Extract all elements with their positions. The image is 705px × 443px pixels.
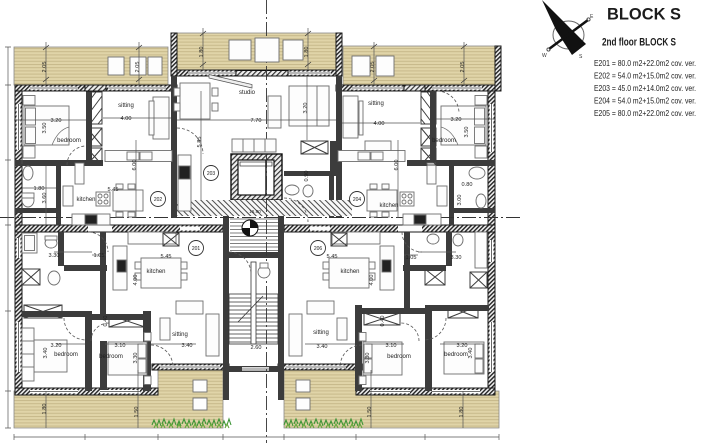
svg-text:sitting: sitting <box>172 332 188 338</box>
svg-text:4.00: 4.00 <box>121 116 132 122</box>
svg-text:1.05: 1.05 <box>94 253 105 259</box>
svg-text:3.40: 3.40 <box>182 343 193 349</box>
svg-text:2.05: 2.05 <box>135 62 141 73</box>
svg-text:5.45: 5.45 <box>327 254 338 260</box>
svg-text:3.30: 3.30 <box>133 353 139 364</box>
svg-text:bedroom: bedroom <box>54 352 78 358</box>
svg-text:3.40: 3.40 <box>317 344 328 350</box>
svg-text:4.00: 4.00 <box>133 275 139 286</box>
svg-text:202: 202 <box>154 197 163 203</box>
svg-text:3.30: 3.30 <box>365 353 371 364</box>
svg-text:E203 = 45.0 m2+14.0m2 cov. ver: E203 = 45.0 m2+14.0m2 cov. ver. <box>594 83 696 93</box>
svg-text:E201 = 80.0 m2+22.0m2 cov. ver: E201 = 80.0 m2+22.0m2 cov. ver. <box>594 58 696 68</box>
svg-text:3.40: 3.40 <box>43 348 49 359</box>
svg-text:3.30: 3.30 <box>49 253 60 259</box>
svg-text:2.05: 2.05 <box>460 62 466 73</box>
svg-text:3.20: 3.20 <box>451 117 462 123</box>
svg-text:3.20: 3.20 <box>457 343 468 349</box>
svg-text:sitting: sitting <box>313 330 329 336</box>
svg-text:1.80: 1.80 <box>34 186 45 192</box>
svg-text:1.80: 1.80 <box>304 47 310 58</box>
svg-text:0.40: 0.40 <box>380 316 386 327</box>
svg-text:3.40: 3.40 <box>468 348 474 359</box>
svg-text:3.50: 3.50 <box>464 127 470 138</box>
svg-text:4.00: 4.00 <box>374 121 385 127</box>
svg-text:W: W <box>542 53 547 59</box>
svg-text:2.05: 2.05 <box>370 62 376 73</box>
svg-text:201: 201 <box>192 246 201 252</box>
svg-text:bedroom: bedroom <box>387 354 411 360</box>
svg-text:2.05: 2.05 <box>42 62 48 73</box>
svg-text:1.05: 1.05 <box>406 255 417 261</box>
svg-text:0.40: 0.40 <box>103 316 109 327</box>
svg-text:2.60: 2.60 <box>251 345 262 351</box>
svg-text:2nd floor BLOCK S: 2nd floor BLOCK S <box>602 37 676 49</box>
svg-text:bedroom: bedroom <box>57 138 81 144</box>
svg-text:7.70: 7.70 <box>251 118 262 124</box>
svg-text:kitchen: kitchen <box>340 269 359 275</box>
svg-text:3.20: 3.20 <box>303 103 309 114</box>
svg-text:studio: studio <box>239 90 256 96</box>
svg-text:4.00: 4.00 <box>369 275 375 286</box>
svg-text:0.80: 0.80 <box>462 182 473 188</box>
svg-text:kitchen: kitchen <box>379 203 398 209</box>
svg-text:sitting: sitting <box>118 103 134 109</box>
svg-text:5.85: 5.85 <box>197 137 203 148</box>
svg-text:bedroom: bedroom <box>99 354 123 360</box>
svg-text:3.30: 3.30 <box>451 255 462 261</box>
svg-text:203: 203 <box>207 171 216 177</box>
svg-text:5.45: 5.45 <box>161 254 172 260</box>
svg-text:3.00: 3.00 <box>457 195 463 206</box>
svg-text:204: 204 <box>353 197 362 203</box>
svg-text:1.80: 1.80 <box>459 407 465 418</box>
svg-text:1.80: 1.80 <box>199 47 205 58</box>
svg-text:bedroom: bedroom <box>432 138 456 144</box>
svg-text:16.80: 16.80 <box>249 209 261 214</box>
svg-text:3.60: 3.60 <box>42 193 48 204</box>
svg-text:6.00: 6.00 <box>132 160 138 171</box>
svg-text:1.80: 1.80 <box>42 404 48 415</box>
svg-text:3.20: 3.20 <box>51 118 62 124</box>
svg-text:kitchen: kitchen <box>76 197 95 203</box>
svg-text:E205 = 80.0 m2+22.0m2 cov. ver: E205 = 80.0 m2+22.0m2 cov. ver. <box>594 108 696 118</box>
svg-text:3.50: 3.50 <box>42 123 48 134</box>
svg-text:BLOCK S: BLOCK S <box>607 5 681 24</box>
svg-text:6.00: 6.00 <box>394 160 400 171</box>
svg-text:3.10: 3.10 <box>115 343 126 349</box>
svg-text:1.50: 1.50 <box>367 407 373 418</box>
svg-text:206: 206 <box>314 246 323 252</box>
svg-text:E202 = 54.0 m2+15.0m2 cov. ver: E202 = 54.0 m2+15.0m2 cov. ver. <box>594 71 696 81</box>
svg-text:kitchen: kitchen <box>146 269 165 275</box>
svg-text:5.45: 5.45 <box>108 187 119 193</box>
svg-text:sitting: sitting <box>368 101 384 107</box>
svg-text:bedroom: bedroom <box>444 352 468 358</box>
svg-text:0.90: 0.90 <box>304 171 310 182</box>
svg-text:1.50: 1.50 <box>134 407 140 418</box>
svg-text:3.20: 3.20 <box>51 343 62 349</box>
svg-text:E204 = 54.0 m2+15.0m2 cov. ver: E204 = 54.0 m2+15.0m2 cov. ver. <box>594 96 696 106</box>
svg-text:3.10: 3.10 <box>386 343 397 349</box>
